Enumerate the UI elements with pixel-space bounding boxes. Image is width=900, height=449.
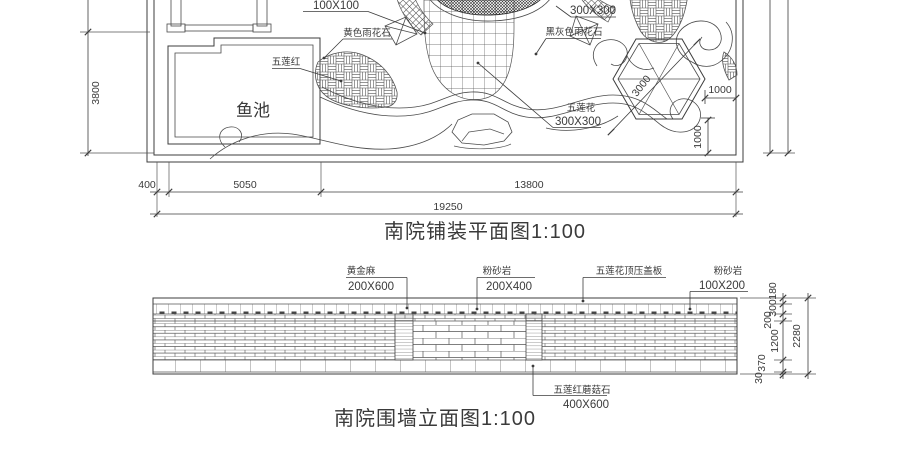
svg-text:1000: 1000 bbox=[708, 84, 732, 96]
hexagon-pavilion: 3000 bbox=[608, 39, 705, 135]
plan-title: 南院铺装平面图1:100 bbox=[384, 220, 586, 243]
svg-text:粉砂岩: 粉砂岩 bbox=[483, 265, 512, 277]
drawing-svg: 鱼池 bbox=[0, 0, 900, 449]
label-dark-grey-pebble: 黑灰色雨花石 bbox=[535, 26, 603, 55]
svg-text:400: 400 bbox=[138, 179, 156, 191]
svg-text:370: 370 bbox=[756, 354, 768, 372]
svg-text:200X600: 200X600 bbox=[348, 281, 394, 293]
right-extension-lines bbox=[763, 0, 795, 156]
dim-1000-horizontal: 1000 bbox=[702, 84, 739, 104]
svg-text:五莲花顶压盖板: 五莲花顶压盖板 bbox=[596, 265, 663, 277]
svg-text:1000: 1000 bbox=[692, 125, 704, 149]
svg-text:黄金麻: 黄金麻 bbox=[347, 265, 376, 277]
dim-3000: 3000 bbox=[608, 39, 700, 135]
svg-text:200X400: 200X400 bbox=[486, 281, 532, 293]
paving-grid bbox=[420, 0, 520, 105]
svg-text:3800: 3800 bbox=[90, 81, 102, 105]
callout-huangjinma: 黄金麻 200X600 bbox=[346, 265, 408, 309]
plan-bottom-dims: 400 5050 13800 19250 bbox=[138, 162, 743, 217]
callout-fenshayan-100x200: 粉砂岩 100X200 bbox=[689, 265, 748, 310]
wall-elevation: 黄金麻 200X600 粉砂岩 200X400 五莲花顶压盖板 粉砂岩 100X… bbox=[153, 265, 816, 430]
wall-body bbox=[153, 298, 737, 374]
svg-text:黑灰色雨花石: 黑灰色雨花石 bbox=[545, 26, 602, 38]
svg-text:黄色雨花石: 黄色雨花石 bbox=[343, 27, 391, 39]
basket-weave-areas bbox=[315, 0, 737, 108]
svg-text:五莲花: 五莲花 bbox=[567, 102, 596, 114]
svg-text:100X200: 100X200 bbox=[699, 280, 745, 292]
svg-text:19250: 19250 bbox=[433, 201, 462, 213]
svg-text:1200: 1200 bbox=[769, 329, 781, 353]
svg-text:五莲红蘑菇石: 五莲红蘑菇石 bbox=[553, 384, 610, 396]
svg-text:2280: 2280 bbox=[791, 324, 803, 348]
fish-pond-label: 鱼池 bbox=[236, 101, 270, 120]
pergola-posts bbox=[167, 0, 271, 32]
svg-text:300X300: 300X300 bbox=[570, 5, 616, 17]
plan-drawing: 鱼池 bbox=[80, 0, 795, 243]
svg-text:30: 30 bbox=[753, 372, 765, 384]
label-300x300-top: 300X300 bbox=[556, 5, 616, 17]
cad-sheet: 鱼池 bbox=[0, 0, 900, 449]
svg-text:180: 180 bbox=[767, 282, 779, 300]
callout-fenshayan-200x400: 粉砂岩 200X400 bbox=[476, 265, 535, 310]
callout-coping-slab: 五莲花顶压盖板 bbox=[582, 265, 666, 302]
svg-text:100X100: 100X100 bbox=[313, 0, 359, 12]
svg-text:300X300: 300X300 bbox=[555, 116, 601, 128]
landscape-rock bbox=[452, 114, 512, 149]
svg-text:400X600: 400X600 bbox=[563, 399, 609, 411]
svg-text:5050: 5050 bbox=[233, 179, 257, 191]
svg-text:粉砂岩: 粉砂岩 bbox=[714, 265, 743, 277]
elevation-right-dims: 180 300 200 1200 370 30 2280 bbox=[740, 282, 816, 384]
fish-pond: 鱼池 bbox=[168, 38, 320, 144]
dim-1000-vertical: 1000 bbox=[692, 117, 715, 156]
svg-text:13800: 13800 bbox=[514, 179, 543, 191]
dim-3800: 3800 bbox=[80, 0, 154, 156]
svg-text:五莲红: 五莲红 bbox=[272, 56, 301, 68]
elevation-title: 南院围墙立面图1:100 bbox=[334, 407, 536, 430]
svg-text:200: 200 bbox=[762, 311, 774, 329]
